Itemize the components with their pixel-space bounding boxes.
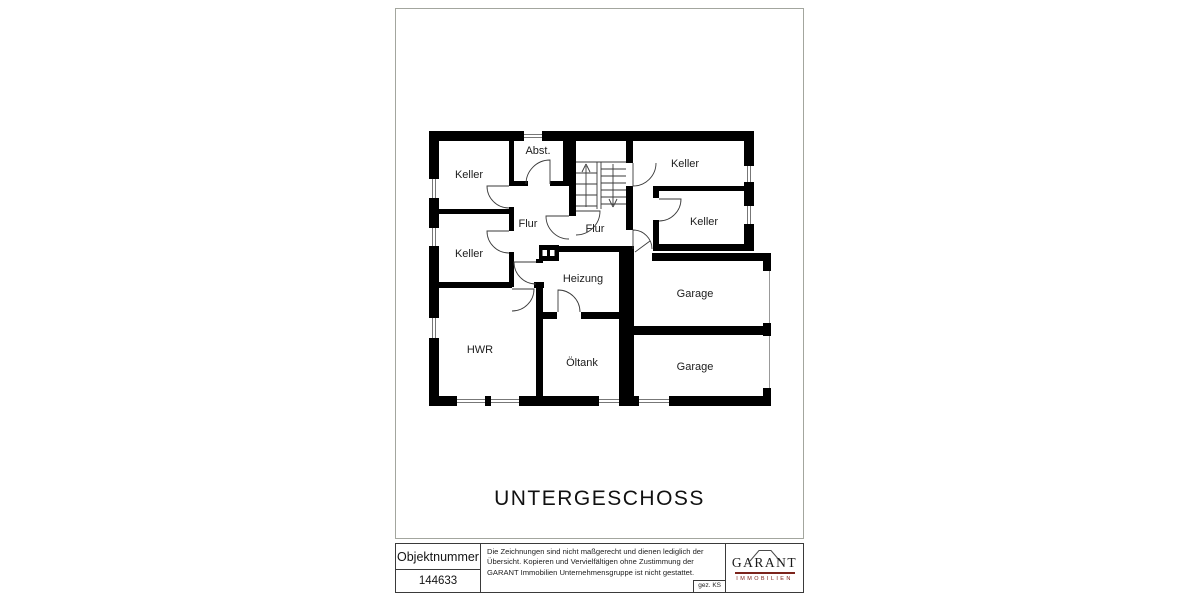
object-number-label: Objektnummer [396,544,480,570]
object-number-cell: Objektnummer 144633 [396,544,481,592]
disclaimer-cell: Die Zeichnungen sind nicht maßgerecht un… [481,544,726,592]
object-number-value: 144633 [396,570,480,592]
room-label-keller-mid-left: Keller [455,248,483,260]
room-label-oeltank: Öltank [566,357,598,369]
floor-plan: Keller Abst. Keller Flur Flur Keller Kel… [396,9,805,540]
paper-sheet: Keller Abst. Keller Flur Flur Keller Kel… [395,8,804,539]
room-label-keller-top-left: Keller [455,169,483,181]
chimney-symbol [539,245,559,261]
logo-rule [735,572,795,574]
logo-cell: GARANT IMMOBILIEN [726,544,803,592]
logo-wordmark-wrap: GARANT [732,555,797,571]
room-label-flur-left: Flur [519,218,538,230]
stair-down-arrow [609,164,617,207]
room-label-garage-bottom: Garage [677,361,714,373]
garant-logo: GARANT IMMOBILIEN [732,555,797,582]
floor-title: UNTERGESCHOSS [396,487,803,511]
staircase [576,162,626,209]
title-block: Objektnummer 144633 Die Zeichnungen sind… [395,543,804,593]
room-label-hwr: HWR [467,344,493,356]
drawn-by-box: gez. KS [693,580,725,592]
room-label-abstellraum: Abst. [525,145,550,157]
room-label-garage-top: Garage [677,288,714,300]
room-label-heizung: Heizung [563,273,603,285]
logo-name: GARANT [732,555,797,571]
logo-subtitle: IMMOBILIEN [736,576,792,582]
room-label-keller-top-right: Keller [671,158,699,170]
room-label-flur-center: Flur [586,223,605,235]
stair-up-arrow [582,164,590,207]
room-label-keller-mid-right: Keller [690,216,718,228]
disclaimer-text: Die Zeichnungen sind nicht maßgerecht un… [487,547,704,577]
